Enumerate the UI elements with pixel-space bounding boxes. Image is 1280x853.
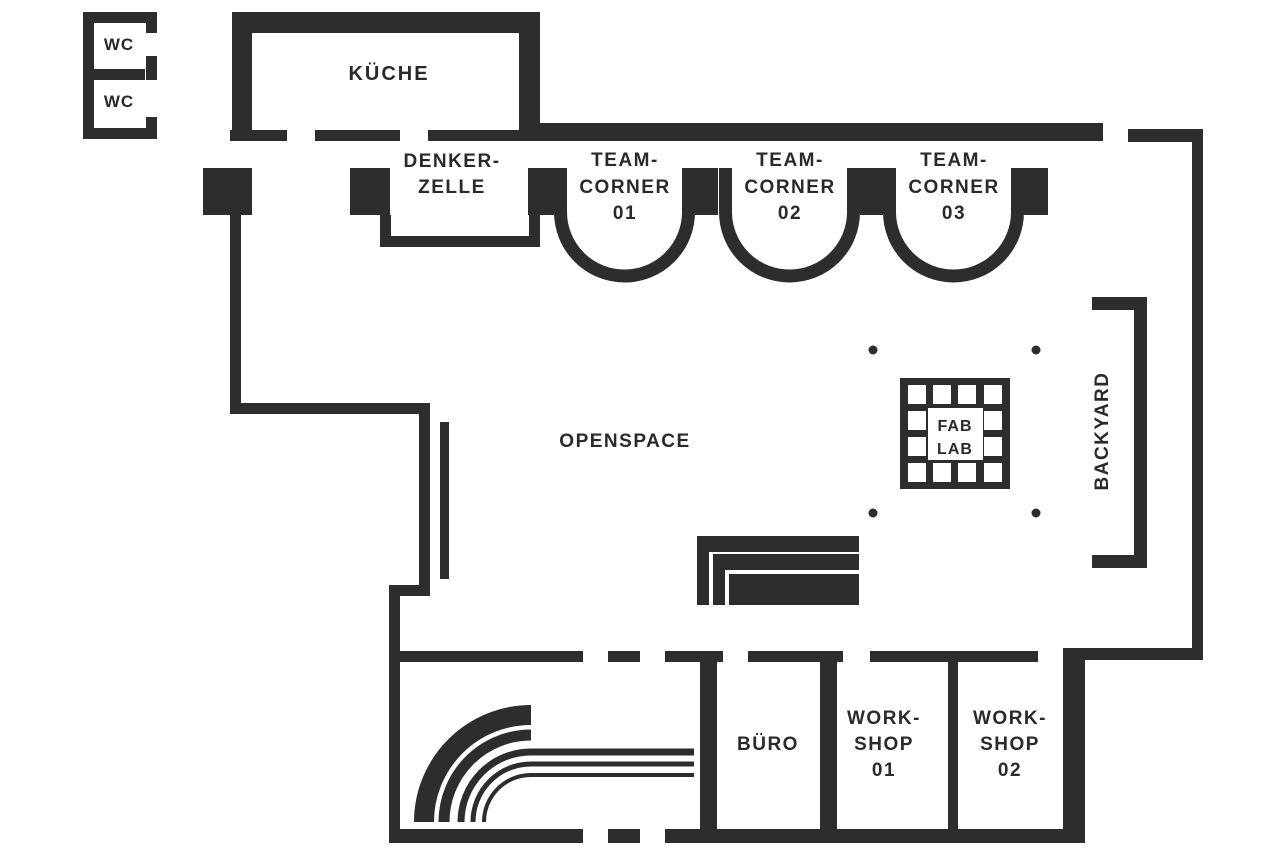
pillar bbox=[1022, 168, 1048, 215]
pillar bbox=[860, 168, 883, 215]
wall bbox=[389, 585, 400, 843]
pillar-dot bbox=[1032, 509, 1041, 518]
wall bbox=[870, 651, 1038, 662]
room-label-workshop01-2: SHOP bbox=[854, 734, 914, 755]
bottom-rooms: BÜRO WORK- SHOP 01 WORK- SHOP 02 bbox=[737, 708, 1047, 781]
floorplan-svg: WC WC KÜCHE DENKER- ZELLE TEAM- bbox=[0, 0, 1280, 853]
step bbox=[729, 574, 859, 605]
room-label-teamcorner01-3: 01 bbox=[613, 203, 637, 224]
wall bbox=[820, 662, 837, 829]
step bbox=[697, 536, 709, 605]
floorplan-canvas: WC WC KÜCHE DENKER- ZELLE TEAM- bbox=[0, 0, 1280, 853]
room-label-fablab-2: LAB bbox=[937, 441, 973, 458]
wall-dash bbox=[428, 130, 519, 141]
backyard-area: BACKYARD bbox=[1092, 297, 1147, 568]
wall bbox=[230, 213, 241, 407]
wall-top-main bbox=[540, 123, 1103, 141]
room-label-teamcorner01-2: CORNER bbox=[579, 177, 670, 198]
pillar bbox=[695, 168, 718, 215]
wall-stub bbox=[146, 56, 157, 80]
wall bbox=[232, 12, 540, 33]
denkerzelle-room: DENKER- ZELLE bbox=[386, 151, 535, 242]
fablab-table: FAB LAB bbox=[869, 346, 1041, 518]
wall bbox=[748, 651, 843, 662]
wall-u bbox=[386, 215, 535, 242]
wall bbox=[419, 403, 430, 593]
pillar-dot bbox=[869, 346, 878, 355]
teamcorner-03: TEAM- CORNER 03 bbox=[890, 150, 1018, 276]
teamcorner-02: TEAM- CORNER 02 bbox=[726, 150, 854, 276]
room-label-denkerzelle-2: ZELLE bbox=[418, 177, 486, 198]
wall bbox=[83, 128, 157, 139]
wall-divider bbox=[83, 69, 145, 80]
wall-right bbox=[1192, 129, 1203, 660]
wall-bottom bbox=[389, 829, 583, 843]
wall bbox=[948, 662, 958, 829]
seat-arc bbox=[484, 775, 694, 822]
stage-steps bbox=[697, 536, 859, 605]
room-label-fablab-1: FAB bbox=[938, 418, 973, 435]
wall-partition bbox=[440, 422, 449, 579]
room-label-teamcorner02-3: 02 bbox=[778, 203, 802, 224]
wall bbox=[389, 651, 583, 662]
room-label-teamcorner03-3: 03 bbox=[942, 203, 966, 224]
arena-seating bbox=[424, 715, 694, 822]
kitchen-room: KÜCHE bbox=[230, 12, 540, 141]
step bbox=[713, 554, 859, 570]
room-label-workshop02-1: WORK- bbox=[973, 708, 1047, 729]
wall bbox=[230, 403, 430, 414]
wall bbox=[700, 662, 717, 829]
wall bbox=[83, 12, 157, 23]
step bbox=[713, 554, 725, 605]
room-label-wc-bottom: WC bbox=[104, 92, 134, 111]
wall-stub bbox=[146, 12, 157, 33]
room-label-denkerzelle-1: DENKER- bbox=[403, 151, 500, 172]
room-label-openspace: OPENSPACE bbox=[559, 431, 690, 452]
room-label-wc-top: WC bbox=[104, 35, 134, 54]
room-label-workshop01-3: 01 bbox=[872, 760, 896, 781]
wall bbox=[519, 12, 540, 141]
wall-dash bbox=[315, 130, 400, 141]
wc-block: WC WC bbox=[83, 12, 157, 139]
pillar bbox=[528, 168, 554, 215]
room-label-teamcorner03-2: CORNER bbox=[908, 177, 999, 198]
room-label-teamcorner01-1: TEAM- bbox=[591, 150, 659, 171]
wall bbox=[1134, 297, 1147, 568]
room-label-teamcorner02-2: CORNER bbox=[744, 177, 835, 198]
seat-arc bbox=[473, 764, 694, 822]
wall-stub bbox=[146, 117, 157, 139]
room-label-office: BÜRO bbox=[737, 734, 799, 755]
wall-top-corner bbox=[1128, 129, 1203, 142]
room-label-teamcorner02-1: TEAM- bbox=[756, 150, 824, 171]
pillar-dot bbox=[1032, 346, 1041, 355]
pillar bbox=[203, 168, 252, 215]
step bbox=[697, 536, 859, 552]
wall bbox=[1092, 555, 1147, 568]
wall-dash bbox=[608, 651, 640, 662]
teamcorner-01: TEAM- CORNER 01 bbox=[561, 150, 689, 276]
wall bbox=[1085, 648, 1203, 660]
wall bbox=[665, 651, 723, 662]
room-label-workshop01-1: WORK- bbox=[847, 708, 921, 729]
wall-dash bbox=[230, 130, 287, 141]
wall-dash bbox=[608, 829, 640, 843]
wall bbox=[1063, 648, 1085, 843]
room-label-teamcorner03-1: TEAM- bbox=[920, 150, 988, 171]
room-label-backyard: BACKYARD bbox=[1092, 372, 1113, 491]
room-label-workshop02-3: 02 bbox=[998, 760, 1022, 781]
wall-bottom bbox=[665, 829, 1085, 843]
pillar bbox=[350, 168, 390, 215]
room-label-kitchen: KÜCHE bbox=[348, 62, 429, 85]
pillar-dot bbox=[869, 509, 878, 518]
room-label-workshop02-2: SHOP bbox=[980, 734, 1040, 755]
